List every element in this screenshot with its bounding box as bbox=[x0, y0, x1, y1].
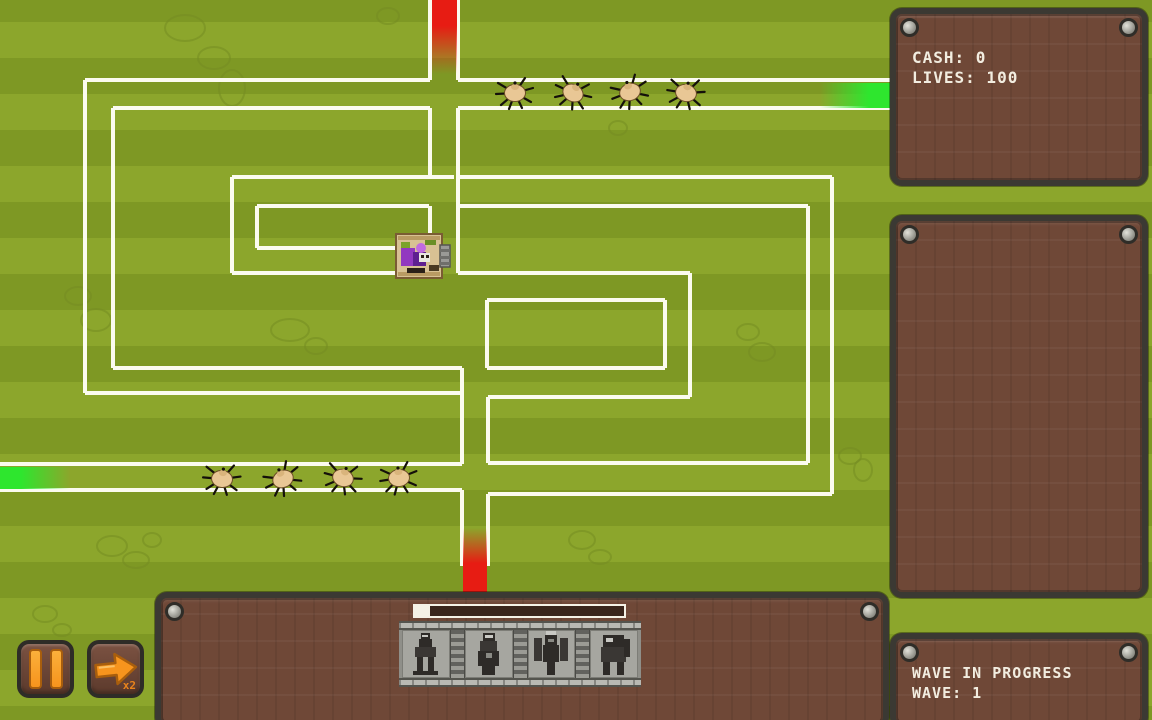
tower-slot-3[interactable] bbox=[528, 630, 576, 678]
tower-slot-1[interactable] bbox=[402, 630, 450, 678]
stats-panel: CASH: 0 LIVES: 100 bbox=[890, 8, 1148, 186]
top-red-portal bbox=[432, 0, 457, 74]
enemy-sprite bbox=[553, 75, 593, 111]
tray-divider bbox=[450, 630, 465, 678]
screw-icon bbox=[165, 602, 184, 621]
lives-label: LIVES: 100 bbox=[912, 68, 1142, 88]
spawn-portals bbox=[0, 0, 890, 592]
cash-label: CASH: 0 bbox=[912, 48, 1142, 68]
wave-progress-bar bbox=[413, 604, 626, 618]
tray-divider bbox=[513, 630, 528, 678]
left-green-portal bbox=[0, 467, 70, 489]
elephant-tower-icon bbox=[596, 630, 632, 678]
tower-slot-2[interactable] bbox=[465, 630, 513, 678]
path-lines bbox=[0, 0, 890, 566]
tower-selection-tray bbox=[399, 621, 641, 687]
rider-tower-icon bbox=[408, 630, 444, 678]
screw-icon bbox=[900, 643, 919, 662]
screw-icon bbox=[860, 602, 879, 621]
pause-icon bbox=[50, 649, 63, 689]
pause-icon bbox=[29, 649, 42, 689]
pause-button[interactable] bbox=[17, 640, 74, 698]
enemy-sprite bbox=[610, 74, 650, 110]
enemy-sprite bbox=[263, 461, 303, 497]
wave-progress-fill bbox=[415, 606, 430, 616]
tray-rail-top bbox=[399, 621, 641, 630]
boss-sprite bbox=[395, 232, 451, 280]
wave-panel: WAVE IN PROGRESS WAVE: 1 bbox=[890, 633, 1148, 720]
enemy-sprite bbox=[202, 461, 242, 497]
tower-slot-4[interactable] bbox=[590, 630, 638, 678]
tray-divider bbox=[575, 630, 590, 678]
wave-number-label: WAVE: 1 bbox=[912, 683, 1142, 703]
winged-demon-tower-icon bbox=[533, 630, 569, 678]
info-panel bbox=[890, 215, 1148, 598]
enemy-sprite bbox=[666, 75, 706, 111]
enemy-sprite bbox=[379, 460, 419, 496]
enemy-sprite bbox=[323, 460, 363, 496]
monk-tower-icon bbox=[471, 630, 507, 678]
grass-decorations bbox=[33, 8, 872, 636]
wave-status-label: WAVE IN PROGRESS bbox=[912, 663, 1142, 683]
fast-forward-multiplier: x2 bbox=[123, 679, 136, 692]
screw-icon bbox=[900, 18, 919, 37]
bottom-red-portal bbox=[463, 528, 487, 592]
screw-icon bbox=[1119, 643, 1138, 662]
tray-rail-bottom bbox=[399, 678, 641, 687]
right-green-portal bbox=[820, 83, 890, 108]
screw-icon bbox=[1119, 18, 1138, 37]
screw-icon bbox=[900, 225, 919, 244]
fast-forward-button[interactable]: x2 bbox=[87, 640, 144, 698]
game-screen: CASH: 0 LIVES: 100 WAVE IN PROGRESS WAVE… bbox=[0, 0, 1152, 720]
enemy-sprite bbox=[495, 75, 535, 111]
screw-icon bbox=[1119, 225, 1138, 244]
